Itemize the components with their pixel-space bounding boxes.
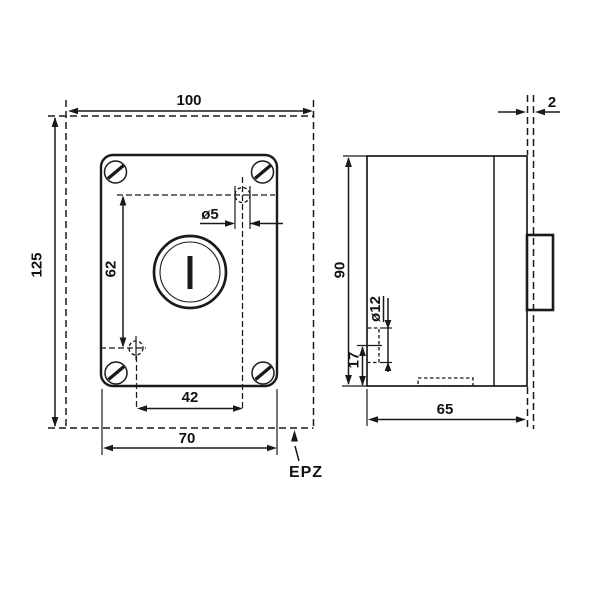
arrowhead-left — [103, 445, 113, 452]
front-view: 100 125 62 ø5 — [29, 92, 324, 481]
epz-label: EPZ — [289, 464, 323, 481]
arrowhead-down — [345, 375, 352, 385]
dim-o12-label: ø12 — [367, 296, 384, 322]
arrowhead-left — [368, 416, 378, 423]
arrowhead-up — [52, 117, 59, 127]
dim-65: 65 — [367, 389, 526, 426]
arrowhead-left — [68, 108, 78, 115]
housing-body — [367, 156, 527, 386]
dim-125-label: 125 — [29, 252, 46, 277]
dim-o5-label: ø5 — [201, 206, 219, 223]
dim-125: 125 — [29, 117, 59, 427]
epz-callout: EPZ — [289, 430, 323, 481]
key-cylinder — [154, 236, 226, 308]
dim-100: 100 — [68, 92, 313, 114]
side-view: 2 90 ø12 17 — [332, 94, 561, 429]
dim-42-label: 42 — [182, 389, 199, 406]
arrowhead-left — [535, 109, 545, 116]
arrowhead-right — [303, 108, 313, 115]
arrowhead-up — [345, 157, 352, 167]
arrowhead-left — [137, 405, 147, 412]
technical-drawing-canvas: 100 125 62 ø5 — [0, 0, 600, 600]
dim-90: 90 — [332, 157, 352, 385]
arrowhead-right — [516, 416, 526, 423]
dim-2: 2 — [498, 94, 560, 115]
arrowhead-right — [516, 109, 526, 116]
cylinder-protrusion — [527, 235, 553, 310]
arrowhead-up — [291, 430, 298, 442]
arrowhead-right — [267, 445, 277, 452]
dim-2-label: 2 — [548, 94, 556, 111]
dim-42: 42 — [137, 389, 243, 412]
dim-65-label: 65 — [437, 401, 454, 418]
dim-100-label: 100 — [176, 92, 201, 109]
dim-17-label: 17 — [346, 352, 363, 369]
arrowhead-down — [359, 376, 366, 386]
dim-62-label: 62 — [103, 261, 120, 278]
arrowhead-right — [233, 405, 243, 412]
dim-70-label: 70 — [179, 430, 196, 447]
drawing-svg: 100 125 62 ø5 — [0, 0, 600, 600]
arrowhead-down — [52, 417, 59, 427]
epz-leader-line — [295, 446, 299, 461]
dim-90-label: 90 — [332, 262, 349, 279]
